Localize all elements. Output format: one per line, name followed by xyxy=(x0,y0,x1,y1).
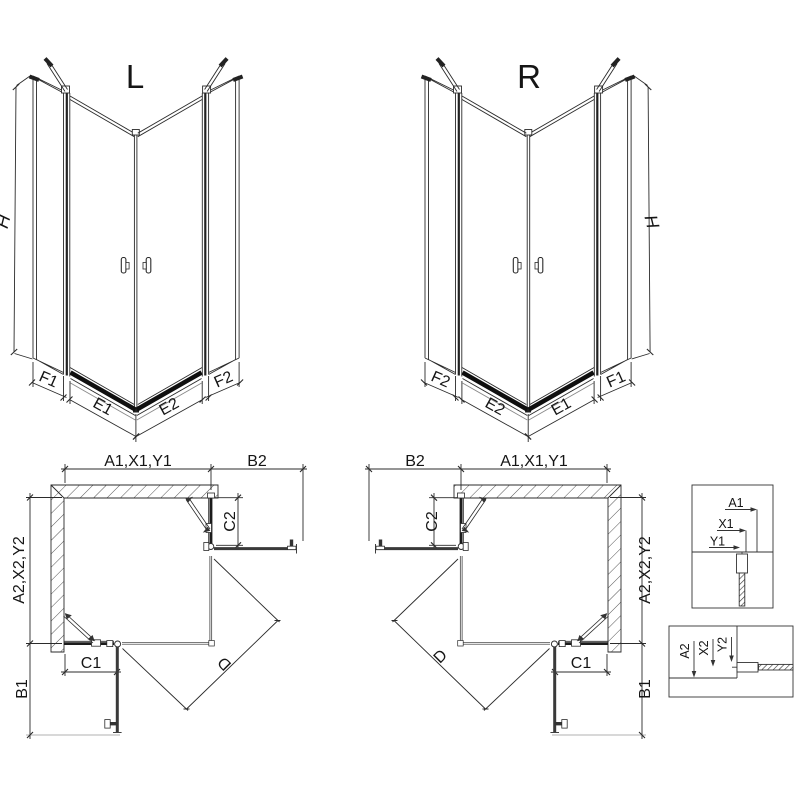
dim-label-a2x2y2-right: A2,X2,Y2 xyxy=(637,536,654,604)
dim-label-f1-right: F1 xyxy=(604,368,628,391)
dim-label-f2-left: F2 xyxy=(212,368,236,391)
dim-label-f2-right: F2 xyxy=(428,368,452,391)
dim-label-a2x2y2-left: A2,X2,Y2 xyxy=(11,536,28,604)
detail-label-x1: X1 xyxy=(718,517,733,531)
view-title-left: L xyxy=(126,58,144,95)
dim-label-c1-left: C1 xyxy=(81,655,102,672)
detail-label-a1: A1 xyxy=(728,496,743,510)
iso-left-labels: L H F1 E1 E2 F2 xyxy=(0,58,236,419)
dim-label-b2-left: B2 xyxy=(247,453,267,470)
dim-label-a1x1y1-right: A1,X1,Y1 xyxy=(500,453,568,470)
dim-label-c2-right: C2 xyxy=(424,511,441,532)
dim-label-f1-left: F1 xyxy=(36,368,60,391)
dim-label-a1x1y1-left: A1,X1,Y1 xyxy=(104,453,172,470)
dim-label-b1-left: B1 xyxy=(14,679,31,699)
view-title-right: R xyxy=(517,58,541,95)
plan-view-right-linework xyxy=(365,464,646,739)
shower-enclosure-dimension-diagram: L H F1 E1 E2 F2 R H F2 E2 E1 F1 A1,X1,Y1… xyxy=(0,0,800,800)
detail-label-y1: Y1 xyxy=(710,535,725,549)
dim-label-b1-right: B1 xyxy=(637,679,654,699)
dim-label-h-left: H xyxy=(0,212,15,230)
dim-label-c2-left: C2 xyxy=(222,511,239,532)
diagram-svg: L H F1 E1 E2 F2 R H F2 E2 E1 F1 A1,X1,Y1… xyxy=(0,0,800,800)
dim-label-b2-right: B2 xyxy=(405,453,425,470)
detail-label-x2: X2 xyxy=(697,640,711,655)
dim-label-h-right: H xyxy=(641,213,664,231)
detail-label-y2: Y2 xyxy=(716,637,730,652)
dim-label-d-left: D xyxy=(215,653,235,673)
dim-label-c1-right: C1 xyxy=(571,655,592,672)
detail-box-wall-profile-vertical xyxy=(669,626,793,697)
plan-view-left-linework xyxy=(26,464,307,739)
dim-label-d-right: D xyxy=(431,647,451,667)
detail-label-a2: A2 xyxy=(678,643,692,658)
wall-hatching xyxy=(51,485,621,652)
iso-right-labels: R H F2 E2 E1 F1 xyxy=(428,58,663,419)
